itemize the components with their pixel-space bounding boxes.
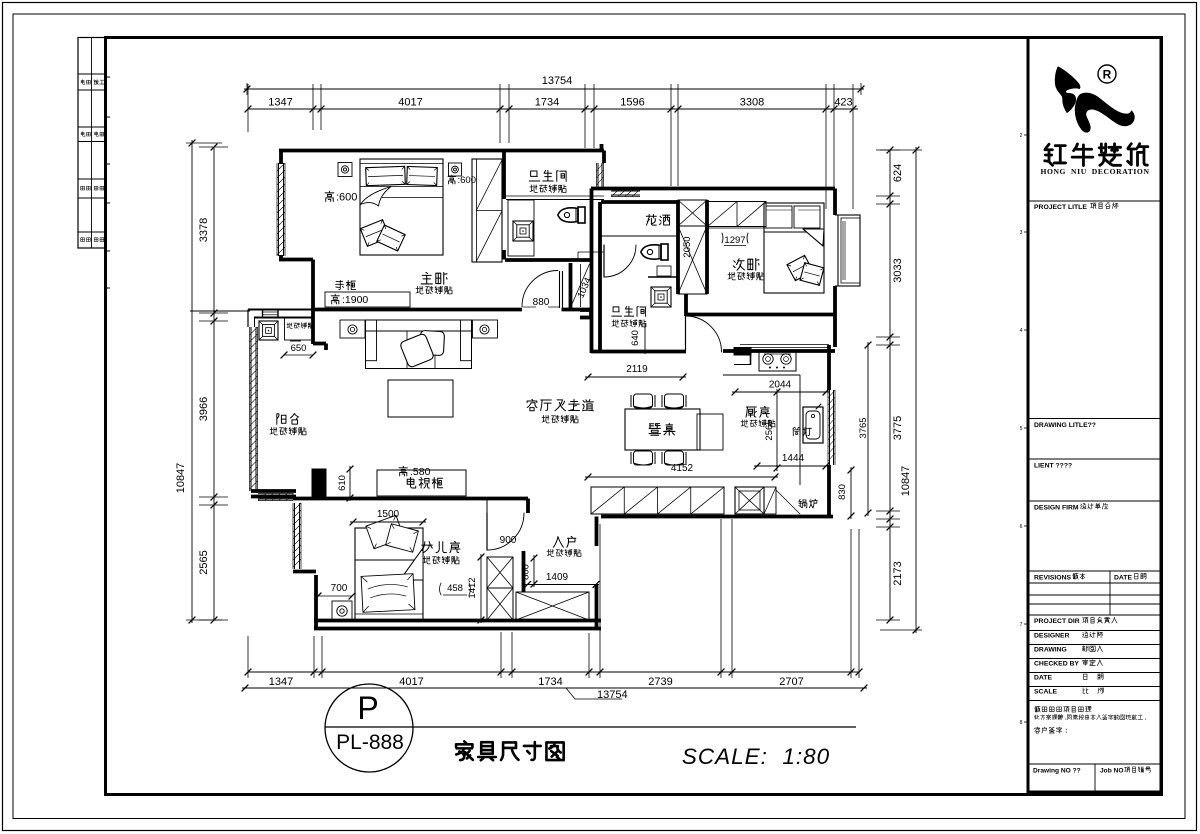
svg-text:624: 624 bbox=[892, 164, 904, 182]
svg-text:423: 423 bbox=[834, 97, 852, 109]
svg-text:2173: 2173 bbox=[892, 561, 904, 585]
svg-text:DRAWING: DRAWING bbox=[1034, 647, 1067, 654]
svg-text:4: 4 bbox=[1020, 328, 1023, 334]
svg-text:1347: 1347 bbox=[268, 97, 292, 109]
svg-text:1297: 1297 bbox=[724, 235, 745, 246]
svg-text::600: :600 bbox=[336, 192, 357, 204]
svg-text:900: 900 bbox=[500, 535, 517, 546]
svg-text:REVISIONS: REVISIONS bbox=[1034, 575, 1071, 582]
svg-text:1409: 1409 bbox=[546, 572, 569, 583]
svg-text:8: 8 bbox=[1020, 720, 1023, 726]
svg-text:2050: 2050 bbox=[682, 236, 693, 257]
svg-text:1734: 1734 bbox=[538, 676, 562, 688]
svg-text::1900: :1900 bbox=[342, 294, 368, 306]
svg-text:6: 6 bbox=[1020, 524, 1023, 530]
svg-text:DATE: DATE bbox=[1114, 575, 1132, 582]
svg-text:10847: 10847 bbox=[900, 466, 912, 497]
svg-text:SCALE: 1:80: SCALE: 1:80 bbox=[682, 744, 830, 769]
svg-text:2565: 2565 bbox=[764, 419, 775, 440]
svg-text:R: R bbox=[1103, 68, 1112, 82]
svg-text:3378: 3378 bbox=[198, 218, 210, 242]
svg-text:458: 458 bbox=[447, 583, 463, 594]
svg-text:HONG NIU DECORATION: HONG NIU DECORATION bbox=[1040, 167, 1149, 176]
svg-text:3966: 3966 bbox=[198, 397, 210, 421]
svg-text:5: 5 bbox=[1020, 426, 1023, 432]
svg-text:SCALE: SCALE bbox=[1034, 689, 1058, 696]
svg-text:610: 610 bbox=[337, 475, 348, 491]
svg-text:880: 880 bbox=[533, 297, 550, 308]
svg-text:DATE: DATE bbox=[1034, 675, 1052, 682]
svg-text:650: 650 bbox=[291, 343, 307, 354]
svg-text:DRAWING LITLE??: DRAWING LITLE?? bbox=[1034, 422, 1096, 429]
svg-text::600: :600 bbox=[458, 175, 477, 186]
svg-text:3775: 3775 bbox=[892, 416, 904, 440]
svg-text:PROJECT DIR: PROJECT DIR bbox=[1034, 618, 1080, 625]
svg-text:2: 2 bbox=[1020, 133, 1023, 139]
svg-text:3765: 3765 bbox=[858, 417, 869, 438]
svg-text:830: 830 bbox=[837, 484, 848, 500]
svg-text:1347: 1347 bbox=[269, 676, 293, 688]
svg-text:2119: 2119 bbox=[626, 364, 648, 375]
svg-text:13754: 13754 bbox=[542, 75, 573, 87]
svg-text:800: 800 bbox=[521, 564, 532, 580]
svg-text:PROJECT LITLE: PROJECT LITLE bbox=[1034, 204, 1087, 211]
svg-text:1500: 1500 bbox=[377, 509, 400, 520]
svg-text:4152: 4152 bbox=[671, 463, 694, 474]
svg-text:2707: 2707 bbox=[779, 676, 803, 688]
svg-text:3033: 3033 bbox=[892, 258, 904, 282]
svg-text:4017: 4017 bbox=[398, 97, 422, 109]
svg-text:Job NO: Job NO bbox=[1100, 768, 1123, 775]
svg-text:1734: 1734 bbox=[535, 97, 559, 109]
svg-text:4017: 4017 bbox=[399, 676, 423, 688]
svg-text:3: 3 bbox=[1020, 230, 1023, 236]
svg-text:DESIGNER: DESIGNER bbox=[1034, 633, 1070, 640]
svg-text:1412: 1412 bbox=[467, 577, 478, 598]
svg-text::580: :580 bbox=[410, 466, 431, 478]
svg-text:7: 7 bbox=[1020, 622, 1023, 628]
svg-text:13754: 13754 bbox=[597, 689, 628, 701]
svg-text:DESIGN FIRM: DESIGN FIRM bbox=[1034, 505, 1079, 512]
svg-text:Drawing NO ??: Drawing NO ?? bbox=[1033, 768, 1081, 775]
svg-text:PL-888: PL-888 bbox=[336, 731, 404, 754]
svg-text:640: 640 bbox=[630, 330, 641, 346]
svg-text:CHECKED BY: CHECKED BY bbox=[1034, 661, 1079, 668]
svg-text:P: P bbox=[357, 690, 378, 726]
svg-text:LIENT ????: LIENT ???? bbox=[1034, 463, 1072, 470]
svg-text:2565: 2565 bbox=[198, 550, 210, 574]
svg-text:3308: 3308 bbox=[740, 97, 764, 109]
svg-text:1444: 1444 bbox=[782, 453, 805, 464]
svg-text:10847: 10847 bbox=[175, 463, 187, 494]
svg-text:1596: 1596 bbox=[620, 97, 644, 109]
svg-text:2739: 2739 bbox=[648, 676, 672, 688]
svg-text:700: 700 bbox=[331, 583, 348, 594]
